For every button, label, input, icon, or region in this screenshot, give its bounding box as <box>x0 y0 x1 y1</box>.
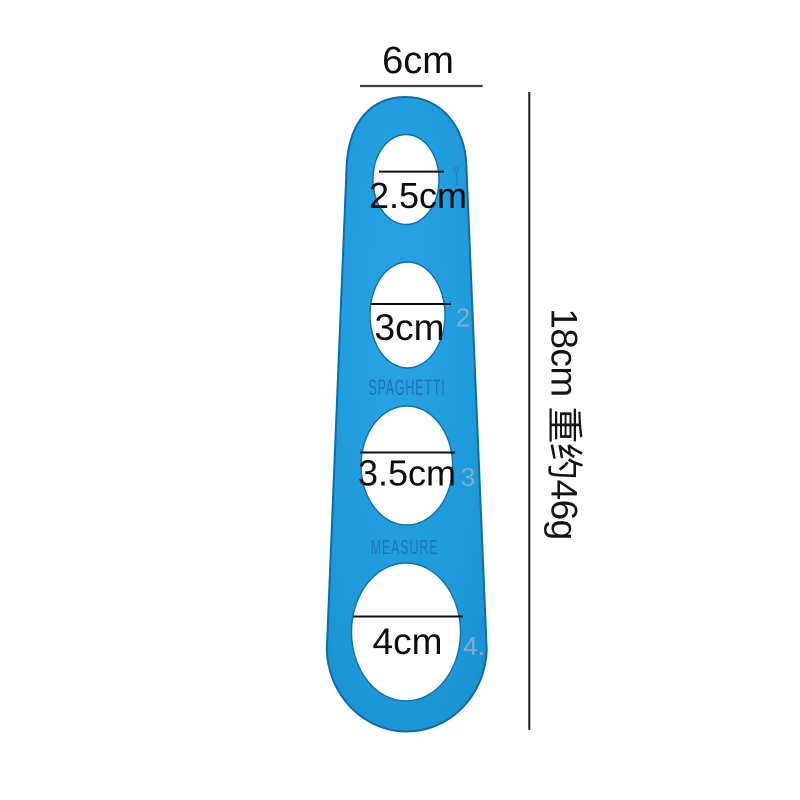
svg-text:3: 3 <box>461 462 475 492</box>
svg-text:4.: 4. <box>463 631 485 661</box>
svg-text:MEASURE: MEASURE <box>371 536 439 559</box>
svg-text:SPAGHETTI: SPAGHETTI <box>368 375 445 400</box>
svg-text:2.5cm: 2.5cm <box>369 175 467 216</box>
svg-text:18cm 重约46g: 18cm 重约46g <box>544 308 585 540</box>
svg-text:2: 2 <box>456 303 470 333</box>
svg-text:3cm: 3cm <box>375 307 445 348</box>
svg-text:3.5cm: 3.5cm <box>358 453 456 494</box>
svg-text:4cm: 4cm <box>373 621 443 662</box>
svg-text:6cm: 6cm <box>382 40 454 82</box>
